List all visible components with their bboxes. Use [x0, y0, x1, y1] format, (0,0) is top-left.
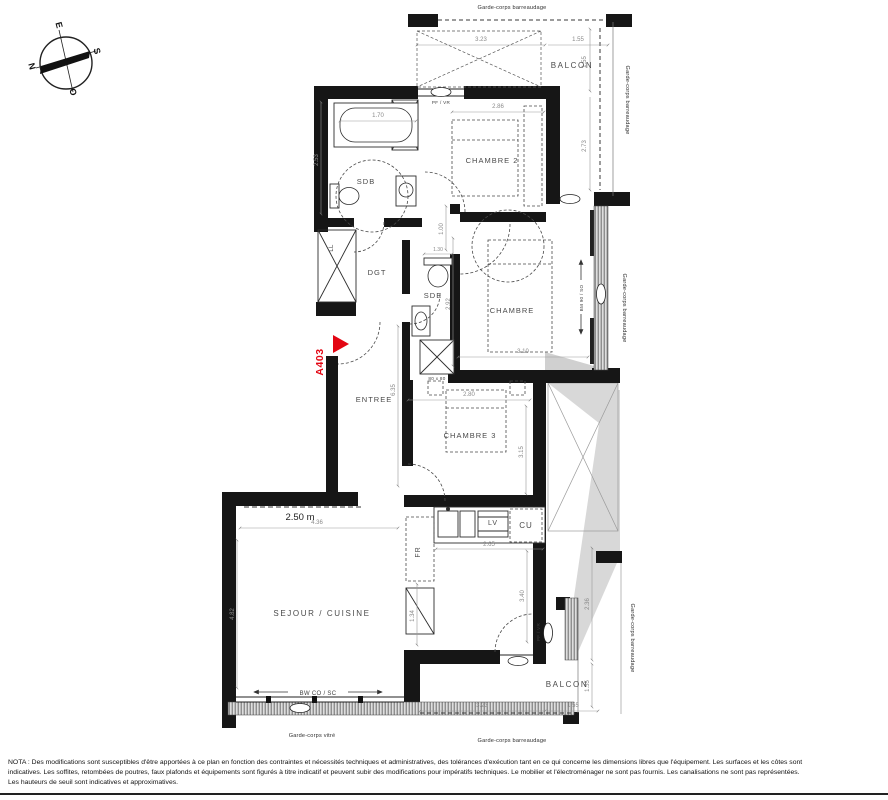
- room-label-entree: ENTREE: [356, 395, 392, 404]
- window-code: PF / VR: [536, 623, 541, 642]
- window-tag: [508, 657, 528, 666]
- window-tag: [560, 195, 580, 204]
- nota-line-2: indicatives. Les soffites, retombées de …: [8, 768, 884, 778]
- dim: 2.73: [582, 140, 588, 152]
- room-label-chambre: CHAMBRE: [490, 306, 535, 315]
- dim: 4.82: [230, 608, 236, 620]
- floorplan-sheet: N E S O: [0, 0, 888, 800]
- dim: 3.40: [520, 590, 526, 602]
- compass-n: N: [26, 62, 37, 71]
- dim: 2.92: [446, 298, 452, 310]
- dim: 3.23: [476, 703, 488, 709]
- unit-id-label: A403: [314, 348, 326, 375]
- cooktop-label: CU: [519, 521, 533, 530]
- nightstand: [428, 381, 443, 395]
- guardrail-label-right-mid: Garde-corps barreaudage: [621, 274, 627, 343]
- sdb-sink: [396, 176, 416, 206]
- adjacent-shaft-zone: [545, 352, 621, 714]
- nota-line-3: Les hauteurs de seuil sont indicatives e…: [8, 778, 884, 788]
- wardrobe-chambre2: [524, 106, 542, 206]
- washer-label: LL: [329, 244, 335, 252]
- window-code: BM 90 / SO: [579, 285, 584, 312]
- window-tag: [597, 284, 606, 304]
- sdb-toilet: [330, 184, 359, 208]
- compass-rose: N E S O: [26, 21, 102, 97]
- bed-chambre3: [446, 390, 506, 452]
- dim: 2.53: [314, 154, 320, 166]
- dim: 2.86: [492, 104, 504, 110]
- shower-size-label: 80 x 80: [428, 376, 445, 381]
- ceiling-height-label: 2.50 m: [285, 512, 314, 523]
- dim: 1.34: [410, 610, 416, 622]
- dim: 2.65: [483, 542, 495, 548]
- window-code: PF / VR: [432, 100, 451, 105]
- dim: 1.55: [572, 37, 584, 43]
- room-label-sejour: SEJOUR / CUISINE: [273, 609, 370, 618]
- room-label-sde: SDE: [424, 291, 442, 300]
- dim: 1.55: [567, 703, 579, 709]
- room-label-dgt: DGT: [368, 268, 387, 277]
- room-label-chambre3: CHAMBRE 3: [444, 431, 497, 440]
- room-label-balcon-top: BALCON: [551, 61, 594, 70]
- sde-sink: [412, 306, 430, 336]
- nightstand: [510, 381, 525, 395]
- dim: 3.15: [519, 446, 525, 458]
- floorplan-drawing: N E S O: [0, 0, 888, 755]
- dim: 1.70: [372, 113, 384, 119]
- window-tag: [431, 88, 451, 97]
- door-swings: [338, 172, 533, 652]
- closet-ll: LL: [318, 230, 356, 302]
- dim: 3.23: [475, 37, 487, 43]
- compass-s: S: [91, 47, 102, 55]
- dim: 2.36: [585, 598, 591, 610]
- guardrail-label-bottom-glass: Garde-corps vitré: [289, 733, 336, 739]
- nota-line-1: NOTA : Des modifications sont susceptibl…: [8, 758, 884, 768]
- nota-block: NOTA : Des modifications sont susceptibl…: [8, 758, 884, 788]
- window-tag: [544, 623, 553, 643]
- room-label-sdb: SDB: [357, 177, 375, 186]
- sheet-border-line: [0, 793, 888, 795]
- window-tag: [290, 704, 310, 713]
- dim: 2.80: [463, 392, 475, 398]
- dishwasher-label: LV: [488, 520, 498, 527]
- compass-e: E: [53, 21, 64, 29]
- dim: 3.10: [517, 349, 529, 355]
- compass-needle: [40, 51, 90, 74]
- guardrail-label-bottom: Garde-corps barreaudage: [478, 738, 547, 744]
- entry-arrow-icon: [333, 335, 349, 353]
- dim: 1.30: [433, 247, 443, 253]
- fridge-label: FR: [415, 546, 422, 557]
- fridge: FR: [406, 517, 434, 581]
- guardrail-label-right-upper: Garde-corps barreaudage: [624, 66, 630, 135]
- room-label-chambre2: CHAMBRE 2: [466, 156, 519, 165]
- room-label-balcon-bottom: BALCON: [546, 680, 589, 689]
- guardrail-label-right-lower: Garde-corps barreaudage: [629, 604, 635, 673]
- sde-toilet: [424, 258, 452, 287]
- compass-o: O: [67, 87, 78, 96]
- dim: 1.00: [439, 223, 445, 235]
- guardrail-label-top: Garde-corps barreaudage: [478, 5, 547, 11]
- bathtub: [334, 103, 418, 147]
- window-code: BW CO / SC: [300, 691, 337, 697]
- kitchen-counter: LV CU: [434, 507, 545, 543]
- dim: 6.35: [391, 384, 397, 396]
